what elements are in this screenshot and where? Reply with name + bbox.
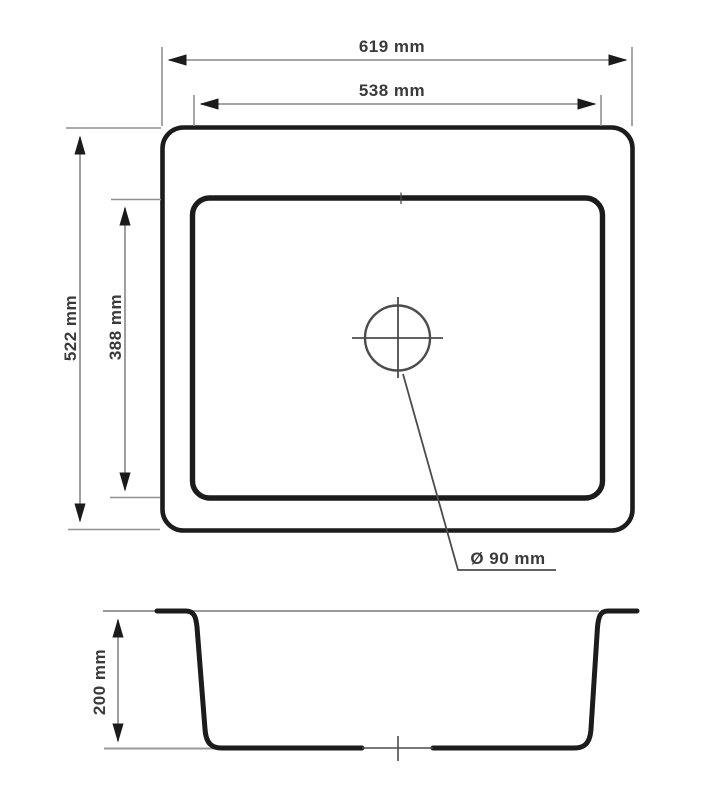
dimension-inner-width: 538 mm (194, 81, 601, 126)
sink-dimension-drawing: Ø 90 mm 619 mm 538 mm 522 mm (0, 0, 708, 800)
dim-388-label: 388 mm (106, 294, 125, 360)
section-left-profile (157, 611, 362, 748)
dim-538-label: 538 mm (359, 81, 425, 100)
dimension-inner-height: 388 mm (106, 200, 161, 498)
drain-leader-line (403, 374, 556, 570)
dimension-depth: 200 mm (90, 620, 118, 741)
dim-200-label: 200 mm (90, 649, 109, 715)
drain-diameter-label: Ø 90 mm (470, 549, 545, 568)
top-view: Ø 90 mm 619 mm 538 mm 522 mm (61, 37, 633, 570)
dim-619-label: 619 mm (359, 37, 425, 56)
section-view: 200 mm (90, 611, 637, 761)
section-right-profile (433, 611, 637, 748)
drawing-svg: Ø 90 mm 619 mm 538 mm 522 mm (0, 0, 708, 800)
dim-522-label: 522 mm (61, 295, 80, 361)
